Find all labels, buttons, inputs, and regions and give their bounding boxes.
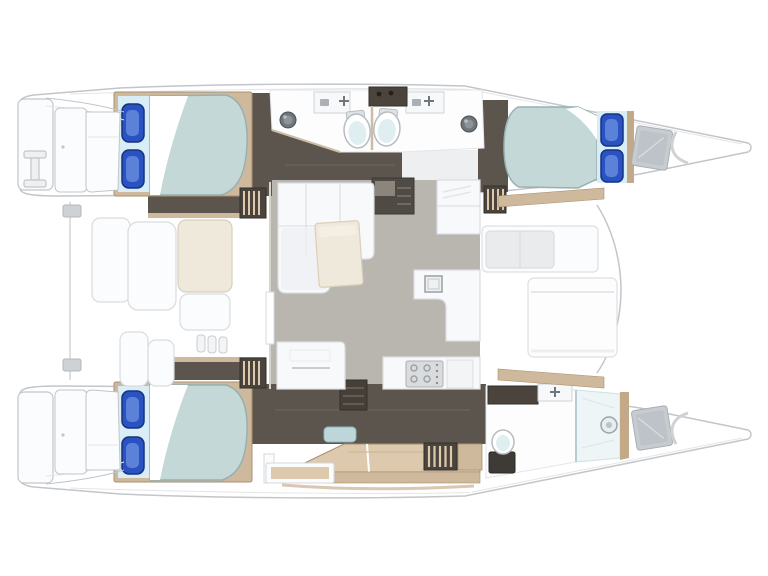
counter-accessory	[412, 99, 421, 106]
vanity-knob	[377, 92, 382, 97]
stbd-hull-dark-floor	[252, 384, 486, 444]
floor-plan-canvas	[0, 0, 768, 576]
nav-bench	[277, 342, 345, 389]
wood-shelf	[458, 444, 482, 470]
port-aft-berth	[114, 92, 252, 196]
cockpit-step-rails	[197, 335, 227, 353]
bulkhead-wall	[620, 392, 629, 460]
companionway-landing	[402, 150, 482, 180]
salon-table	[315, 221, 363, 288]
stove-icon	[406, 361, 443, 387]
salon-door	[266, 292, 274, 344]
galley-fridge-unit	[437, 180, 480, 234]
lounge-sunpad	[528, 278, 617, 357]
galley-sink-panel	[447, 360, 473, 388]
cockpit-seat	[148, 340, 174, 386]
shower-compartment	[576, 390, 629, 462]
catamaran-floor-plan	[0, 0, 768, 576]
lounge-bench	[482, 226, 598, 272]
side-deck-trim	[498, 188, 604, 207]
port-forward-berth	[504, 107, 634, 188]
cockpit-seat	[180, 294, 230, 330]
basin-icon	[461, 116, 477, 132]
pillow-icon	[122, 104, 144, 142]
starboard-berth	[114, 382, 252, 482]
vanity-unit	[488, 386, 538, 404]
pillow-icon	[122, 150, 144, 188]
toilet-icon	[489, 430, 515, 473]
louvered-locker	[240, 358, 266, 388]
cockpit-seat	[120, 332, 148, 386]
cockpit-seat	[128, 222, 176, 310]
forward-lounge	[482, 188, 617, 388]
shower-head-icon	[601, 417, 617, 433]
counter-accessory	[320, 99, 329, 106]
bulkhead-wall	[627, 111, 634, 183]
vanity-unit	[369, 87, 407, 106]
pillow-icon	[601, 114, 623, 146]
pillow-icon	[122, 391, 144, 428]
cockpit-cushion	[178, 220, 232, 292]
deck-hatch-icon	[631, 405, 673, 450]
pillow-icon	[601, 150, 623, 182]
galley-run	[383, 357, 480, 389]
port-companionway-cabinet	[372, 178, 414, 214]
deck-hatch-icon	[631, 125, 673, 170]
louvered-locker	[240, 188, 266, 218]
sink-counter	[406, 92, 444, 113]
louvered-locker	[424, 443, 457, 470]
cockpit-seat	[92, 218, 130, 302]
basin-icon	[280, 112, 296, 128]
stool-cushion	[324, 427, 356, 442]
davit-tab	[63, 205, 81, 217]
pillow-icon	[122, 437, 144, 474]
starboard-transom-platform	[18, 390, 124, 484]
davit-tab	[63, 359, 81, 371]
vanity-knob	[389, 91, 394, 96]
